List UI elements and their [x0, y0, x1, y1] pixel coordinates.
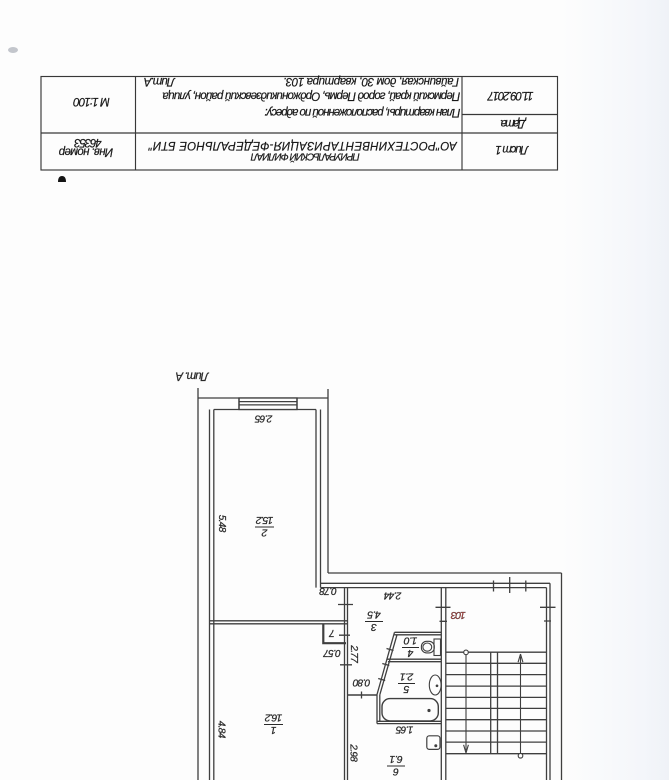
svg-text:4.84: 4.84 — [216, 721, 227, 739]
svg-text:5.48: 5.48 — [216, 515, 227, 533]
svg-text:2.98: 2.98 — [348, 743, 359, 762]
svg-text:2.77: 2.77 — [348, 644, 359, 663]
svg-text:Лит. А: Лит. А — [175, 370, 209, 382]
svg-text:5: 5 — [403, 683, 409, 695]
svg-text:0.78: 0.78 — [319, 585, 337, 596]
svg-text:7: 7 — [329, 627, 335, 638]
svg-text:Гайвинская, дом 30, квартира 1: Гайвинская, дом 30, квартира 103. — [283, 75, 459, 87]
svg-text:0.80: 0.80 — [352, 677, 370, 688]
svg-text:6: 6 — [393, 766, 399, 778]
svg-text:16.2: 16.2 — [265, 712, 283, 724]
svg-text:2.65: 2.65 — [254, 413, 273, 424]
svg-text:Инв. номер: Инв. номер — [58, 146, 113, 158]
svg-text:4.5: 4.5 — [367, 609, 381, 621]
svg-text:Дата: Дата — [501, 117, 528, 129]
svg-text:1.0: 1.0 — [404, 635, 418, 647]
svg-text:1: 1 — [271, 724, 277, 736]
svg-text:2: 2 — [261, 527, 268, 539]
svg-text:3: 3 — [371, 621, 377, 633]
svg-text:ПРИУРАЛЬСКИЙ ФИЛИАЛ: ПРИУРАЛЬСКИЙ ФИЛИАЛ — [251, 151, 360, 164]
svg-text:Лит.А: Лит.А — [143, 75, 175, 87]
svg-text:6.1: 6.1 — [389, 753, 403, 765]
svg-text:103: 103 — [451, 609, 466, 621]
svg-text:2.1: 2.1 — [400, 671, 415, 683]
svg-text:15.2: 15.2 — [256, 514, 274, 526]
svg-text:4: 4 — [407, 647, 413, 659]
svg-text:11.09.2017: 11.09.2017 — [487, 89, 534, 101]
svg-text:Лист 1: Лист 1 — [495, 143, 529, 155]
svg-text:АО"РОСТЕХИНВЕНТАРИЗАЦИЯ-ФЕДЕРА: АО"РОСТЕХИНВЕНТАРИЗАЦИЯ-ФЕДЕРАЛЬНОЕ БТИ" — [148, 139, 458, 151]
svg-text:1.65: 1.65 — [395, 724, 413, 735]
svg-text:Пермский край, город Пермь, Ор: Пермский край, город Пермь, Орджоникидзе… — [162, 90, 460, 102]
svg-text:План квартиры, расположенной п: План квартиры, расположенной по адресу: — [264, 106, 460, 118]
svg-text:2.44: 2.44 — [383, 590, 402, 601]
svg-text:0.57: 0.57 — [323, 647, 341, 658]
svg-text:М 1:100: М 1:100 — [73, 95, 110, 107]
